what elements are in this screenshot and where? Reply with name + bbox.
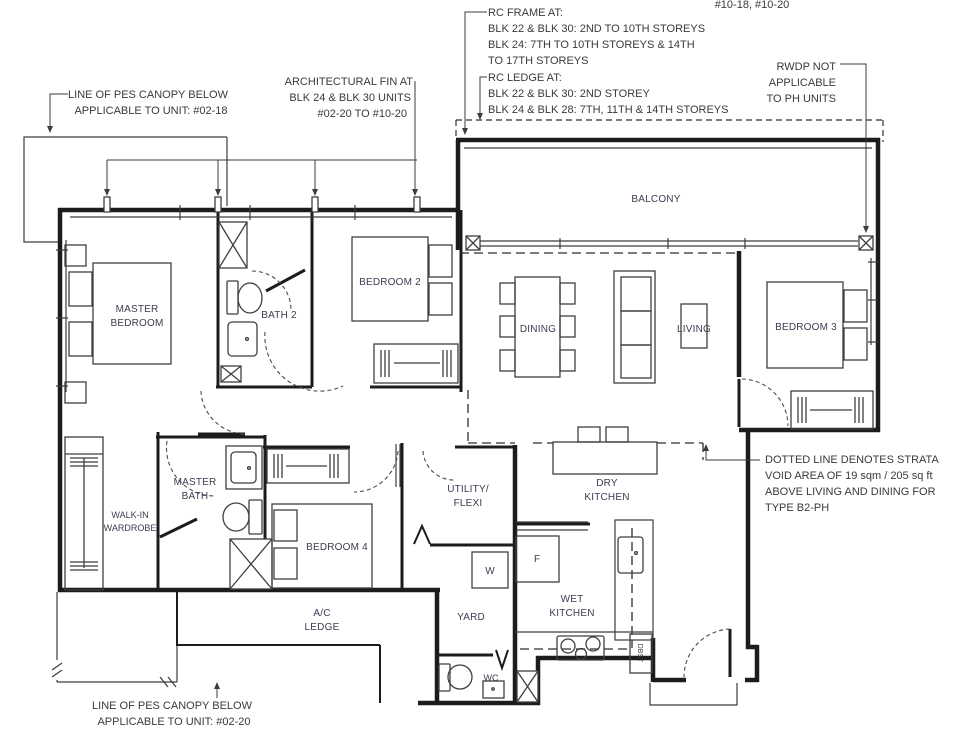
bedroom-3-furniture xyxy=(767,282,873,429)
room-label-ac-ledge-1: A/C xyxy=(313,608,330,619)
room-label-utility-1: UTILITY/ xyxy=(447,484,489,495)
unit-numbers-label: #10-18, #10-20 xyxy=(715,0,790,11)
room-label-dining: DINING xyxy=(520,324,556,335)
arch-fin-line-2: BLK 24 & BLK 30 UNITS xyxy=(289,92,411,104)
room-label-living: LIVING xyxy=(677,324,711,335)
floor-plan-page: #10-18, #10-20 RC FRAME AT: BLK 22 & BLK… xyxy=(0,0,953,744)
arch-fin-line-1: ARCHITECTURAL FIN AT xyxy=(285,76,414,88)
rc-ledge-line-3: BLK 24 & BLK 28: 7TH, 11TH & 14TH STOREY… xyxy=(488,104,728,116)
room-label-bedroom-3: BEDROOM 3 xyxy=(775,322,837,333)
bedroom-4-furniture xyxy=(267,449,372,588)
strata-void-line-4: TYPE B2-PH xyxy=(765,502,829,514)
room-label-walk-in-wardrobe-2: WARDROBE xyxy=(104,523,157,533)
rwdp-line-1: RWDP NOT xyxy=(777,61,837,73)
rc-ledge-line-2: BLK 22 & BLK 30: 2ND STOREY xyxy=(488,88,650,100)
pes-canopy-bottom-line-2: APPLICABLE TO UNIT: #02-20 xyxy=(97,716,250,728)
room-label-bedroom-4: BEDROOM 4 xyxy=(306,542,368,553)
room-label-master-bedroom-2: BEDROOM xyxy=(110,318,163,329)
room-label-bedroom-2: BEDROOM 2 xyxy=(359,277,421,288)
room-label-master-bedroom-1: MASTER xyxy=(116,304,159,315)
dry-kitchen-island xyxy=(553,427,657,474)
room-label-wet-kitchen-2: KITCHEN xyxy=(549,608,594,619)
arch-fin-line-3: #02-20 TO #10-20 xyxy=(318,108,408,120)
rwdp-boxes xyxy=(466,236,873,250)
room-label-dry-kitchen-2: KITCHEN xyxy=(584,492,629,503)
room-label-master-bath-1: MASTER xyxy=(174,477,217,488)
walk-in-wardrobe-furniture xyxy=(65,437,103,590)
refuse-chute-label: DBST xyxy=(636,644,643,663)
pes-canopy-top-line-1: LINE OF PES CANOPY BELOW xyxy=(68,89,229,101)
room-label-master-bath-2: BATH xyxy=(182,491,209,502)
window-lines xyxy=(56,148,878,392)
rc-frame-line-2: BLK 22 & BLK 30: 2ND TO 10TH STOREYS xyxy=(488,23,705,35)
fridge-label: F xyxy=(534,554,540,565)
room-label-utility-2: FLEXI xyxy=(454,498,483,509)
floor-plan-drawing: #10-18, #10-20 RC FRAME AT: BLK 22 & BLK… xyxy=(0,0,953,744)
room-label-walk-in-wardrobe-1: WALK-IN xyxy=(111,510,148,520)
bath-2-fixtures xyxy=(219,222,262,382)
room-label-ac-ledge-2: LEDGE xyxy=(305,622,340,633)
rc-frame-line-4: TO 17TH STOREYS xyxy=(488,55,588,67)
pes-canopy-bottom-line-1: LINE OF PES CANOPY BELOW xyxy=(92,700,253,712)
rc-frame-line-1: RC FRAME AT: xyxy=(488,7,563,19)
rwdp-line-3: TO PH UNITS xyxy=(767,93,836,105)
room-label-wet-kitchen-1: WET xyxy=(561,594,584,605)
room-label-bath-2: BATH 2 xyxy=(261,310,297,321)
pes-canopy-lines xyxy=(24,137,227,687)
room-label-yard: YARD xyxy=(457,612,485,623)
strata-void-line-3: ABOVE LIVING AND DINING FOR xyxy=(765,486,936,498)
bedroom-2-furniture xyxy=(352,237,458,383)
room-label-wc: WC xyxy=(484,673,499,683)
rc-ledge-line-1: RC LEDGE AT: xyxy=(488,72,562,84)
pes-canopy-top-line-2: APPLICABLE TO UNIT: #02-18 xyxy=(74,105,227,117)
room-label-dry-kitchen-1: DRY xyxy=(596,478,618,489)
strata-void-line-1: DOTTED LINE DENOTES STRATA xyxy=(765,454,939,466)
room-label-balcony: BALCONY xyxy=(631,194,680,205)
annotations: #10-18, #10-20 RC FRAME AT: BLK 22 & BLK… xyxy=(68,0,939,728)
rc-frame-line-3: BLK 24: 7TH TO 10TH STOREYS & 14TH xyxy=(488,39,695,51)
washer-label: W xyxy=(485,566,495,577)
strata-void-line-2: VOID AREA OF 19 sqm / 205 sq ft xyxy=(765,470,933,482)
rwdp-line-2: APPLICABLE xyxy=(769,77,836,89)
